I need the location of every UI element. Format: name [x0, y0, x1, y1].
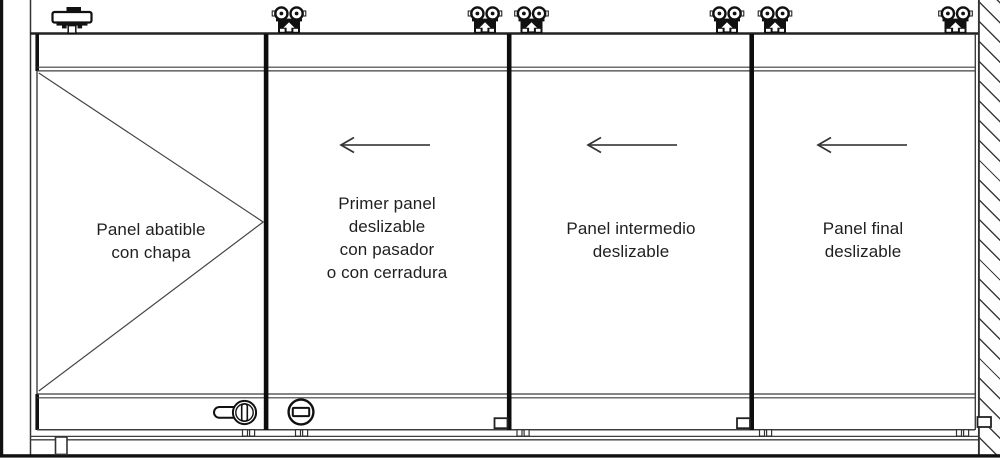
- label-final-sliding-panel: Panel final deslizable: [753, 217, 973, 263]
- label-line: o con cerradura: [277, 261, 497, 284]
- flush-pull-icon: [289, 400, 314, 425]
- roller-trolley-icon: [272, 7, 306, 33]
- arrow-left-icon: [341, 138, 430, 153]
- roller-trolley-icon: [468, 7, 502, 33]
- arrow-left-icon: [588, 138, 677, 153]
- label-intermediate-sliding-panel: Panel intermedio deslizable: [521, 217, 741, 263]
- roller-trolley-icon: [710, 7, 744, 33]
- label-line: con chapa: [41, 241, 261, 264]
- roller-trolley-icon: [939, 7, 973, 33]
- label-line: Panel intermedio: [521, 217, 741, 240]
- pivot-hinge-icon: [53, 7, 92, 33]
- lock-cylinder-handle-icon: [214, 401, 256, 424]
- label-line: deslizable: [277, 215, 497, 238]
- label-line: deslizable: [521, 240, 741, 263]
- label-first-sliding-panel: Primer panel deslizable con pasador o co…: [277, 192, 497, 284]
- label-line: Panel abatible: [41, 218, 261, 241]
- label-line: con pasador: [277, 238, 497, 261]
- bottom-guide-tabs: [243, 430, 969, 436]
- panel-system-drawing: Panel abatible con chapa Primer panel de…: [0, 0, 1000, 459]
- label-hinged-panel: Panel abatible con chapa: [41, 218, 261, 264]
- label-line: deslizable: [753, 240, 973, 263]
- roller-trolley-icon: [758, 7, 792, 33]
- label-line: Primer panel: [277, 192, 497, 215]
- label-line: Panel final: [753, 217, 973, 240]
- arrow-left-icon: [818, 138, 907, 153]
- roller-trolley-icon: [515, 7, 549, 33]
- keeper-bracket-icon: [495, 417, 992, 428]
- floor-guide-icon: [56, 437, 68, 454]
